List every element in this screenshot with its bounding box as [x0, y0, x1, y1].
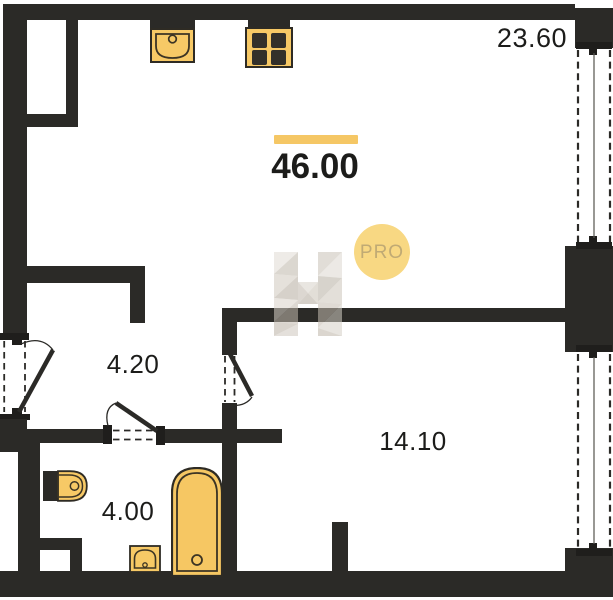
entry-door-nub-bottom	[12, 408, 22, 414]
door-bedroom	[225, 353, 252, 406]
window-2	[578, 354, 610, 548]
wall-shaft-horizontal	[27, 114, 78, 127]
window2-nub-top	[589, 352, 597, 358]
wall-interior-vertical-upper	[222, 308, 237, 355]
window1-sill-top	[576, 42, 612, 49]
entry-door-nub-top	[12, 340, 22, 345]
wall-top	[3, 4, 575, 20]
door-bathroom	[107, 403, 157, 440]
h-logo-watermark	[274, 252, 342, 336]
wall-bottom-stub	[332, 522, 348, 573]
wall-bottom	[0, 571, 613, 597]
wall-bathroom-top-left	[0, 429, 104, 443]
wall-hallway-top	[27, 266, 145, 283]
window1-sill-bottom	[576, 242, 612, 249]
wall-left-upper	[3, 4, 27, 334]
bedroom-area-label: 14.10	[373, 428, 453, 454]
wall-bathroom-left	[18, 443, 40, 573]
toilet-icon	[43, 470, 88, 502]
wall-shaft-vertical	[66, 19, 78, 118]
door-entrance	[4, 341, 53, 412]
kitchen-sink-icon	[150, 20, 195, 63]
bathtub-icon	[171, 467, 223, 577]
wall-right-middle-block	[565, 246, 613, 352]
stove-icon	[245, 20, 293, 68]
wall-niche-top	[40, 538, 82, 550]
bathroom-door-jamb-right	[156, 426, 165, 445]
wall-bathroom-top-right	[156, 429, 282, 443]
hallway-area-label: 4.20	[100, 351, 166, 377]
window1-nub-top	[589, 49, 597, 55]
wall-hallway-leg	[130, 283, 145, 323]
pro-badge-label: PRO	[360, 243, 404, 262]
washbasin-icon	[129, 545, 161, 579]
bathroom-area-label: 4.00	[95, 498, 161, 524]
window2-nub-bottom	[589, 543, 597, 549]
entry-door-jamb-top	[0, 333, 29, 340]
total-area-accent-bar	[274, 135, 358, 144]
floorplan-canvas: PRO 46.00 23.60 4.20 14.10 4.00	[0, 0, 613, 600]
bathroom-door-jamb-left	[103, 425, 112, 444]
pro-badge: PRO	[354, 224, 410, 280]
living-room-area-label: 23.60	[480, 25, 567, 52]
window1-nub-bottom	[589, 236, 597, 242]
total-area-label: 46.00	[258, 149, 372, 184]
window-1	[578, 50, 610, 242]
window2-sill-top	[576, 345, 612, 352]
window2-sill-bottom	[576, 549, 612, 556]
